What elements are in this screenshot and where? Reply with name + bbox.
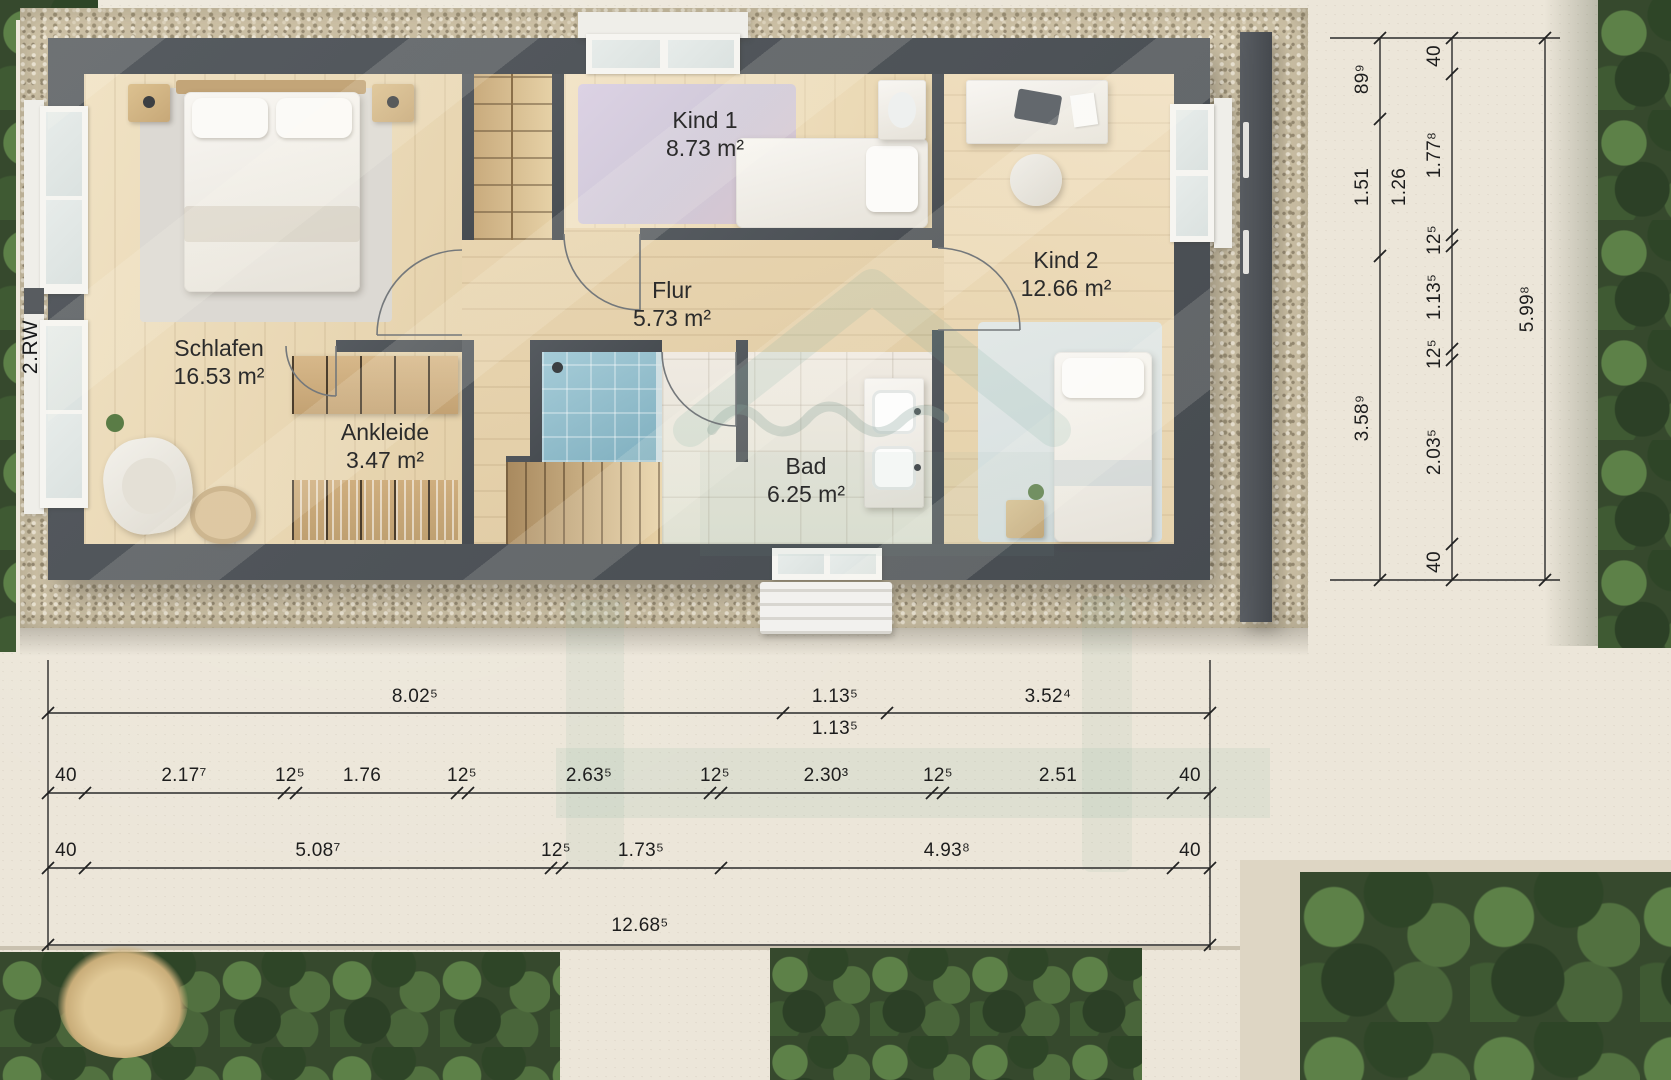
dim-label: 12⁵ <box>275 765 305 787</box>
dim-label: 5.08⁷ <box>295 840 340 862</box>
level-label: 2.RW <box>19 320 43 374</box>
room-label-kind2: Kind 2 12.66 m² <box>1021 246 1112 302</box>
room-name: Kind 1 <box>666 106 744 134</box>
dim-label: 1.13⁵ <box>1424 274 1446 320</box>
floor-plan-scene: 2.RW Schlafen 16.53 m² Ankleide 3.47 m² … <box>0 0 1671 1080</box>
dim-label: 40 <box>55 765 77 787</box>
dim-label: 3.58⁹ <box>1352 395 1374 442</box>
room-area: 5.73 m² <box>633 304 711 332</box>
dim-label: 12⁵ <box>700 765 730 787</box>
room-label-bad: Bad 6.25 m² <box>767 452 845 508</box>
dim-label: 40 <box>1179 840 1201 862</box>
room-area: 12.66 m² <box>1021 274 1112 302</box>
dim-label: 12⁵ <box>1424 225 1446 255</box>
dim-label: 12⁵ <box>447 765 477 787</box>
room-name: Schlafen <box>174 334 265 362</box>
dim-label: 1.77⁸ <box>1424 132 1446 179</box>
room-name: Bad <box>767 452 845 480</box>
dim-label: 1.13⁵ <box>812 686 858 708</box>
dim-label: 2.51 <box>1039 765 1077 787</box>
dim-label: 40 <box>1179 765 1201 787</box>
dim-label: 1.73⁵ <box>618 840 664 862</box>
dim-label: 89⁹ <box>1352 64 1374 94</box>
dim-label: 4.93⁸ <box>924 840 971 862</box>
dim-label: 12⁵ <box>923 765 953 787</box>
room-label-kind1: Kind 1 8.73 m² <box>666 106 744 162</box>
dim-label: 40 <box>55 840 77 862</box>
room-label-schlafen: Schlafen 16.53 m² <box>174 334 265 390</box>
dim-label: 2.30³ <box>804 765 849 787</box>
dim-label: 40 <box>1424 45 1446 67</box>
dim-label: 2.63⁵ <box>566 765 612 787</box>
room-name: Kind 2 <box>1021 246 1112 274</box>
dim-label: 1.13⁵ <box>812 718 858 740</box>
dim-label: 12⁵ <box>1424 339 1446 369</box>
dim-label-total-depth: 5.99⁸ <box>1517 286 1539 333</box>
room-area: 3.47 m² <box>341 446 429 474</box>
dim-label: 40 <box>1424 551 1446 573</box>
room-area: 8.73 m² <box>666 134 744 162</box>
room-area: 16.53 m² <box>174 362 265 390</box>
room-area: 6.25 m² <box>767 480 845 508</box>
room-name: Flur <box>633 276 711 304</box>
dim-label: 12⁵ <box>541 840 571 862</box>
dimension-lines <box>0 0 1671 1080</box>
dim-label: 1.26 <box>1389 168 1411 206</box>
dim-label: 2.17⁷ <box>161 765 206 787</box>
dim-label: 3.52⁴ <box>1025 686 1072 708</box>
dim-label: 8.02⁵ <box>392 686 438 708</box>
room-name: Ankleide <box>341 418 429 446</box>
dim-label: 1.76 <box>343 765 381 787</box>
dim-label: 1.51 <box>1352 168 1374 206</box>
dim-label-total-width: 12.68⁵ <box>611 915 668 937</box>
room-label-ankleide: Ankleide 3.47 m² <box>341 418 429 474</box>
room-label-flur: Flur 5.73 m² <box>633 276 711 332</box>
dim-label: 2.03⁵ <box>1424 429 1446 475</box>
